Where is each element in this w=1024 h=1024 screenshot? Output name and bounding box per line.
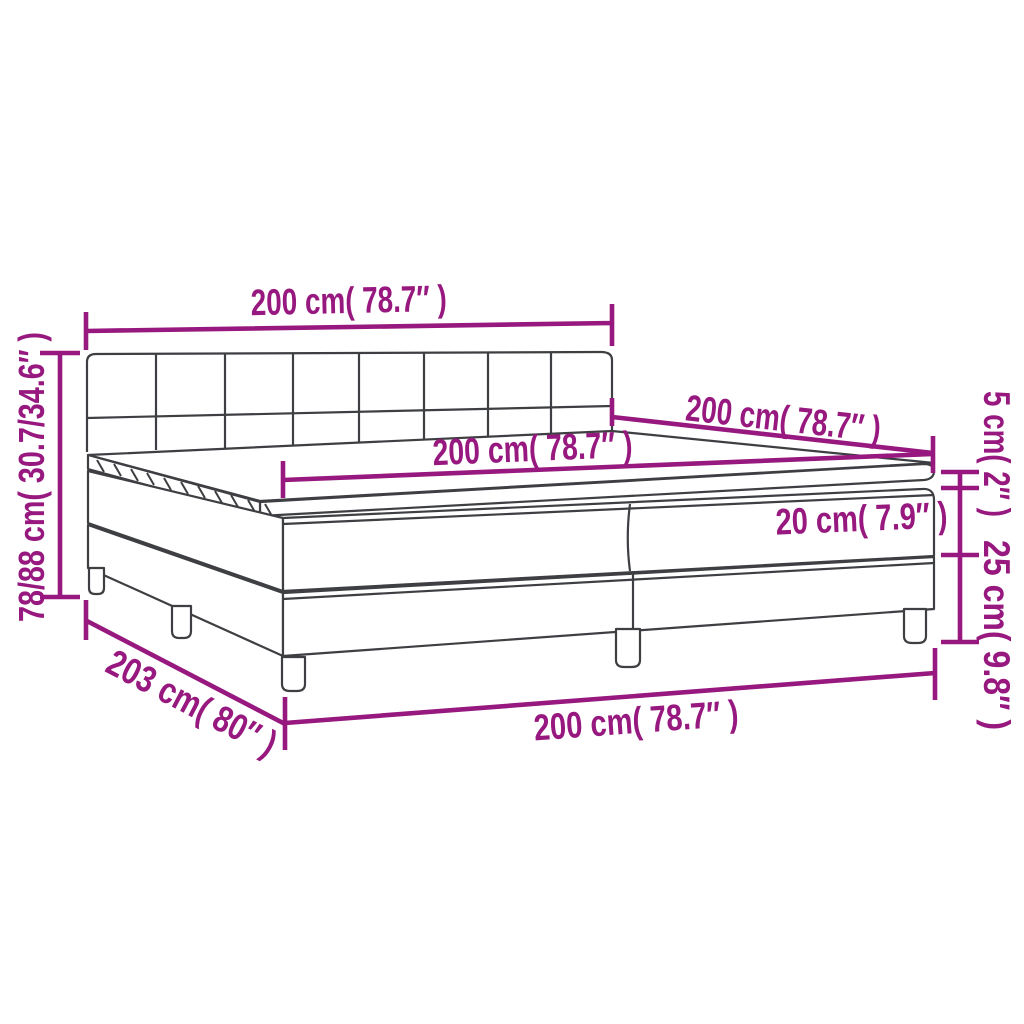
bed-leg-front-right [904,609,926,643]
label-bed-length: 203 cm( 80″ ) [100,642,284,765]
label-mattress-width: 200 cm( 78.7″ ) [432,424,634,473]
label-headboard-width: 200 cm( 78.7″ ) [250,278,447,323]
bed-leg-front-left [282,657,305,691]
bed-dimension-diagram: 200 cm( 78.7″ ) 78/88 cm( 30.7/34.6″ ) 2… [0,0,1024,1024]
bed-leg-mid-left [172,606,191,638]
label-base-height: 25 cm( 9.8″ ) [976,540,1017,730]
bed-leg-rear-left [89,568,104,594]
label-topper-height: 5 cm( 2″ ) [976,391,1017,517]
diagram-canvas: 200 cm( 78.7″ ) 78/88 cm( 30.7/34.6″ ) 2… [0,0,1024,1024]
dimension-line-right-heights [941,472,979,642]
label-total-height: 78/88 cm( 30.7/34.6″ ) [11,332,52,622]
label-mattress-height: 20 cm( 7.9″ ) [775,494,949,542]
bed-leg-front-middle [616,629,640,667]
